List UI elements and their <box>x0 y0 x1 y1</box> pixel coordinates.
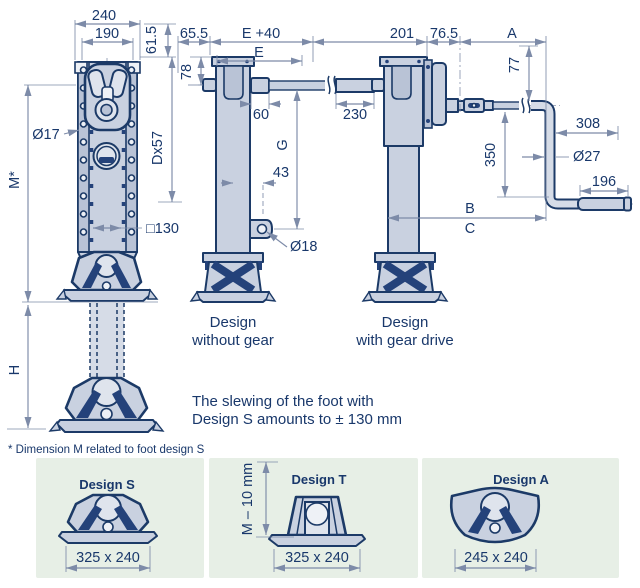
design-a-label: Design A <box>493 472 549 487</box>
dim-plate-to-axle: 78 <box>179 64 195 80</box>
dim-shaft-plus: E +40 <box>242 26 280 42</box>
technical-drawing-page: 240 190 61.5 Ø17 Dx57 M* □130 H 65.5 E +… <box>0 0 640 588</box>
dim-lug-hole: Ø18 <box>290 239 317 255</box>
dim-lift-h: H <box>7 365 23 375</box>
side-view-leg-gear <box>363 57 631 302</box>
design-t-label: Design T <box>292 472 347 487</box>
dim-square-tube: □130 <box>146 221 179 237</box>
dim-depth: 201 <box>390 26 414 42</box>
dim-height-m: M* <box>7 171 23 189</box>
dim-top-offset: 61.5 <box>144 26 160 54</box>
caption-with-gear-2: with gear drive <box>355 332 454 349</box>
caption-without-gear-2: without gear <box>191 332 274 349</box>
gearbox <box>424 60 493 128</box>
captions: Design without gear Design with gear dri… <box>8 314 454 456</box>
design-s-footprint: 325 x 240 <box>76 550 140 566</box>
cross-shaft <box>251 76 383 95</box>
dim-gearbox-offset: 76.5 <box>430 26 458 42</box>
dim-outer-width: 240 <box>92 8 116 24</box>
caption-without-gear-1: Design <box>210 314 257 331</box>
design-a-footprint: 245 x 240 <box>464 550 528 566</box>
design-t-footprint: 325 x 240 <box>285 550 349 566</box>
dim-crank-arm: 308 <box>576 116 600 132</box>
dim-grip-length: 196 <box>592 174 616 190</box>
dim-extension: Dx57 <box>150 131 166 165</box>
crank-handle <box>493 98 631 211</box>
design-s-label: Design S <box>79 477 135 492</box>
centerlines <box>107 58 636 434</box>
dim-bolt-span: 190 <box>95 26 119 42</box>
caption-with-gear-1: Design <box>382 314 429 331</box>
slewing-note-line1: The slewing of the foot with <box>192 393 374 410</box>
dim-reach-a: A <box>507 26 517 42</box>
extended-inner-leg <box>90 303 124 387</box>
dim-crank-axis: G <box>275 139 291 150</box>
swivel-foot-extended <box>50 378 163 432</box>
dim-c: C <box>465 221 475 237</box>
dim-bracket-offset: 65.5 <box>180 26 208 42</box>
design-t-height: M – 10 mm <box>240 463 256 536</box>
dim-axle-drop: 77 <box>507 57 523 73</box>
dim-spline: 230 <box>343 107 367 123</box>
slewing-note-line2: Design S amounts to ± 130 mm <box>192 411 402 428</box>
dim-crank-drop: 350 <box>483 143 499 167</box>
dim-shaft: E <box>254 45 264 61</box>
dim-hole-dia: Ø17 <box>32 127 59 143</box>
footnote: * Dimension M related to foot design S <box>8 444 205 456</box>
bpw-logo <box>94 143 120 169</box>
dim-lug-offset: 43 <box>273 165 289 181</box>
dim-tube-dia: Ø27 <box>573 149 600 165</box>
dim-coupling: 60 <box>253 107 269 123</box>
dim-b: B <box>465 201 475 217</box>
front-view-leg <box>57 62 157 301</box>
